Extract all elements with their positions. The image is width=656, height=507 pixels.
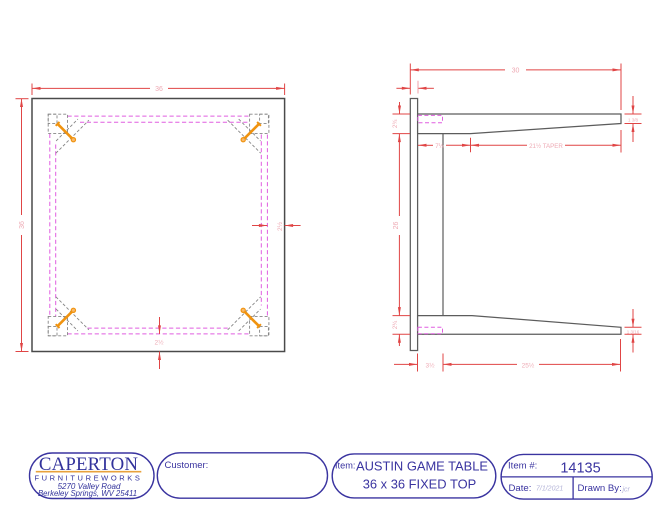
svg-text:Item #:: Item #: — [508, 461, 537, 472]
svg-text:7/1/2021: 7/1/2021 — [536, 485, 563, 492]
svg-text:14135: 14135 — [560, 461, 600, 477]
svg-text:Item:: Item: — [335, 461, 355, 471]
svg-text:30: 30 — [512, 68, 520, 75]
svg-text:2½: 2½ — [154, 339, 164, 347]
svg-text:2½: 2½ — [276, 221, 284, 231]
svg-text:jcr: jcr — [622, 486, 631, 493]
svg-text:Date:: Date: — [509, 483, 532, 494]
svg-text:36: 36 — [19, 221, 26, 229]
svg-text:Drawn By:: Drawn By: — [578, 483, 622, 494]
svg-text:2¾: 2¾ — [393, 320, 399, 329]
svg-text:2¾: 2¾ — [393, 119, 399, 128]
svg-text:21½ TAPER: 21½ TAPER — [529, 143, 563, 150]
svg-text:AUSTIN GAME TABLE: AUSTIN GAME TABLE — [356, 459, 488, 474]
svg-text:26: 26 — [393, 222, 400, 230]
svg-text:3½: 3½ — [425, 361, 435, 369]
svg-text:25½: 25½ — [522, 361, 535, 369]
svg-text:Customer:: Customer: — [165, 460, 209, 471]
svg-text:36 x 36 FIXED TOP: 36 x 36 FIXED TOP — [363, 477, 476, 492]
svg-text:1 3/16: 1 3/16 — [627, 330, 640, 335]
svg-text:Berkeley Springs, WV 25411: Berkeley Springs, WV 25411 — [38, 489, 137, 498]
svg-text:7½: 7½ — [435, 143, 444, 150]
svg-text:1 3/8: 1 3/8 — [628, 118, 639, 123]
svg-text:36: 36 — [155, 86, 163, 93]
